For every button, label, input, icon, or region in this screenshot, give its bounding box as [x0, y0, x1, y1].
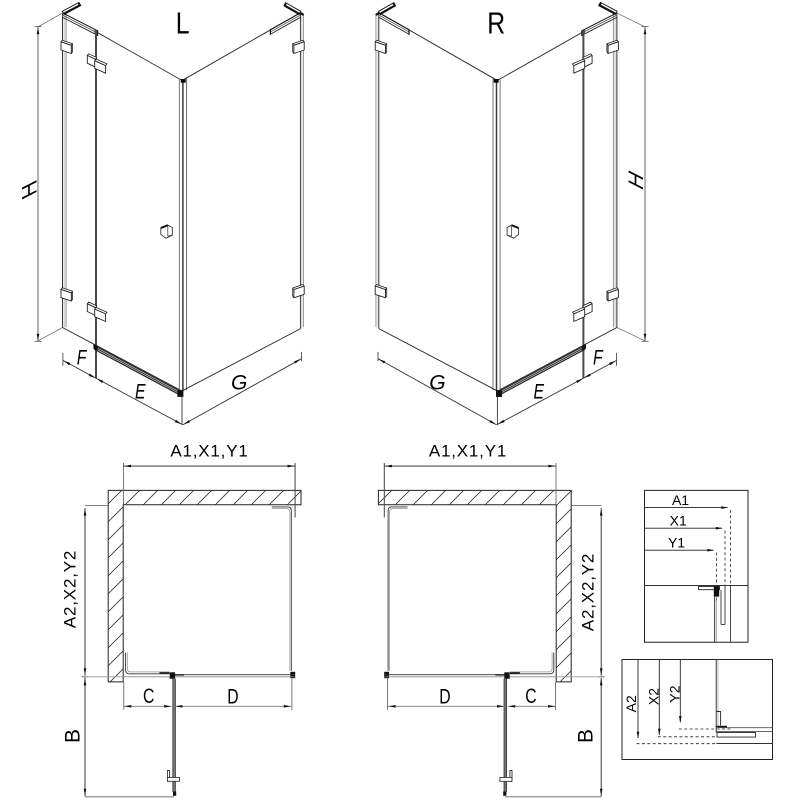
svg-text:B: B [62, 729, 85, 743]
svg-text:F: F [593, 345, 604, 369]
svg-text:A1,X1,Y1: A1,X1,Y1 [429, 441, 507, 460]
svg-text:E: E [534, 379, 545, 403]
svg-text:A2: A2 [623, 695, 639, 712]
svg-text:X2: X2 [645, 688, 661, 705]
svg-text:L: L [176, 6, 190, 40]
svg-text:R: R [487, 6, 505, 40]
svg-text:Y1: Y1 [668, 535, 685, 551]
svg-text:D: D [439, 684, 450, 708]
svg-text:G: G [231, 371, 247, 394]
svg-text:A2,X2,Y2: A2,X2,Y2 [61, 550, 80, 628]
svg-text:C: C [525, 684, 536, 708]
svg-text:A1,X1,Y1: A1,X1,Y1 [170, 441, 248, 460]
svg-text:D: D [227, 684, 238, 708]
svg-text:E: E [135, 379, 146, 403]
svg-text:A2,X2,Y2: A2,X2,Y2 [579, 553, 598, 631]
svg-text:A1: A1 [672, 492, 689, 508]
svg-text:G: G [429, 371, 445, 394]
svg-text:Y2: Y2 [666, 685, 682, 702]
svg-text:X1: X1 [670, 513, 687, 529]
svg-text:F: F [77, 345, 88, 369]
svg-text:B: B [575, 729, 598, 743]
svg-text:C: C [143, 684, 154, 708]
